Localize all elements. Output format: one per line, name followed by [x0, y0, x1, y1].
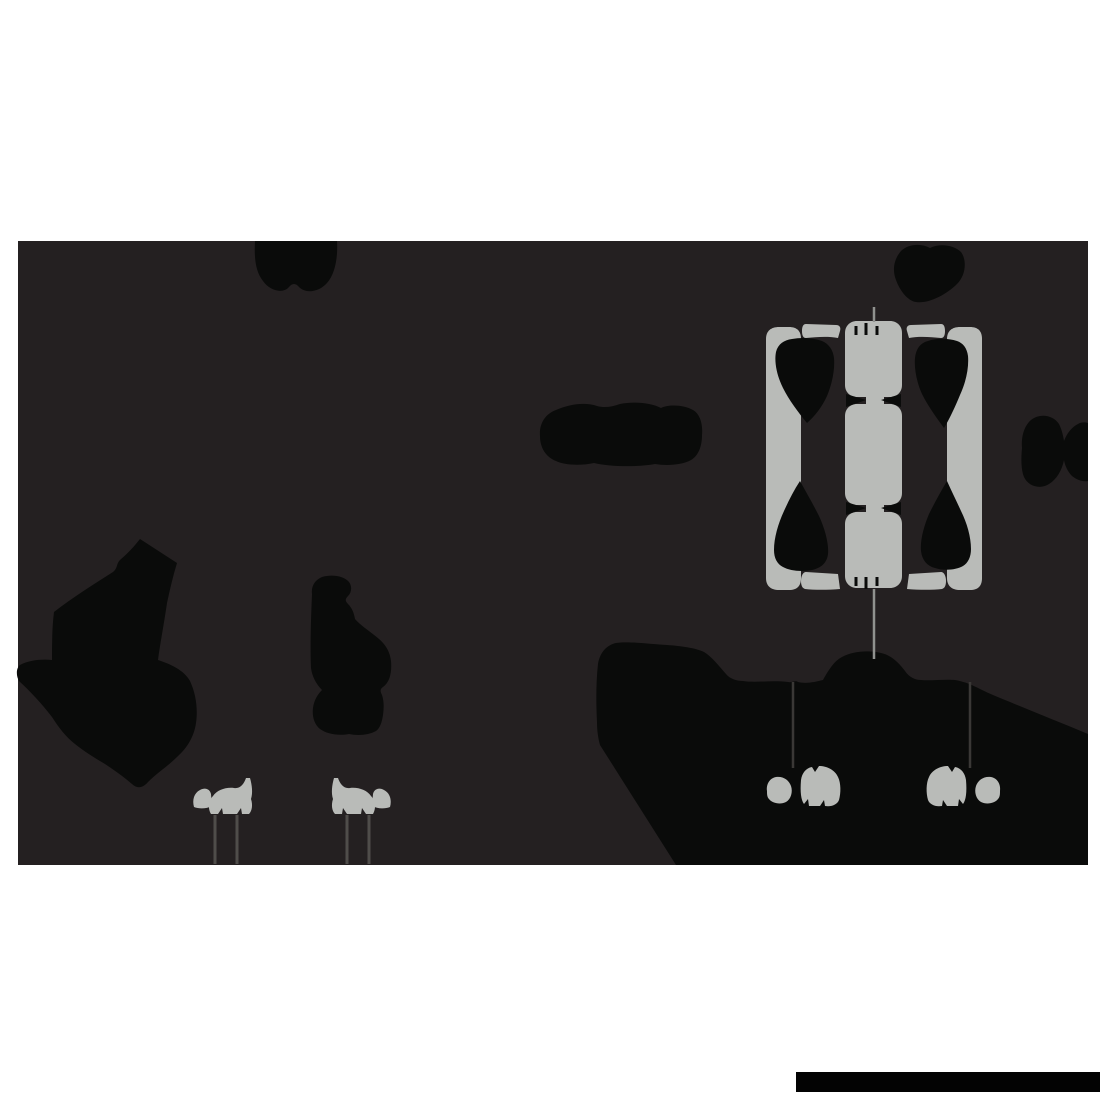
window-center-segment-top: [845, 321, 902, 397]
window-left-foot: [801, 572, 840, 590]
lying-animal-silhouette: [540, 403, 702, 467]
scene-canvas: [0, 0, 1100, 1100]
window-center-segment-bottom: [845, 512, 902, 588]
hanging-animal-big-right: [927, 766, 967, 806]
hanging-animal-big-left: [801, 766, 841, 806]
window-center-segment-mid: [845, 404, 902, 505]
silhouette-scene-svg: [0, 0, 1100, 1100]
bottom-black-bar: [796, 1072, 1100, 1092]
hanging-swag-silhouette: [255, 241, 337, 291]
window-right-foot: [907, 572, 946, 590]
window-right-shoulder: [907, 324, 945, 338]
bowtie-silhouette: [1021, 416, 1088, 487]
window-left-shoulder: [802, 324, 840, 338]
